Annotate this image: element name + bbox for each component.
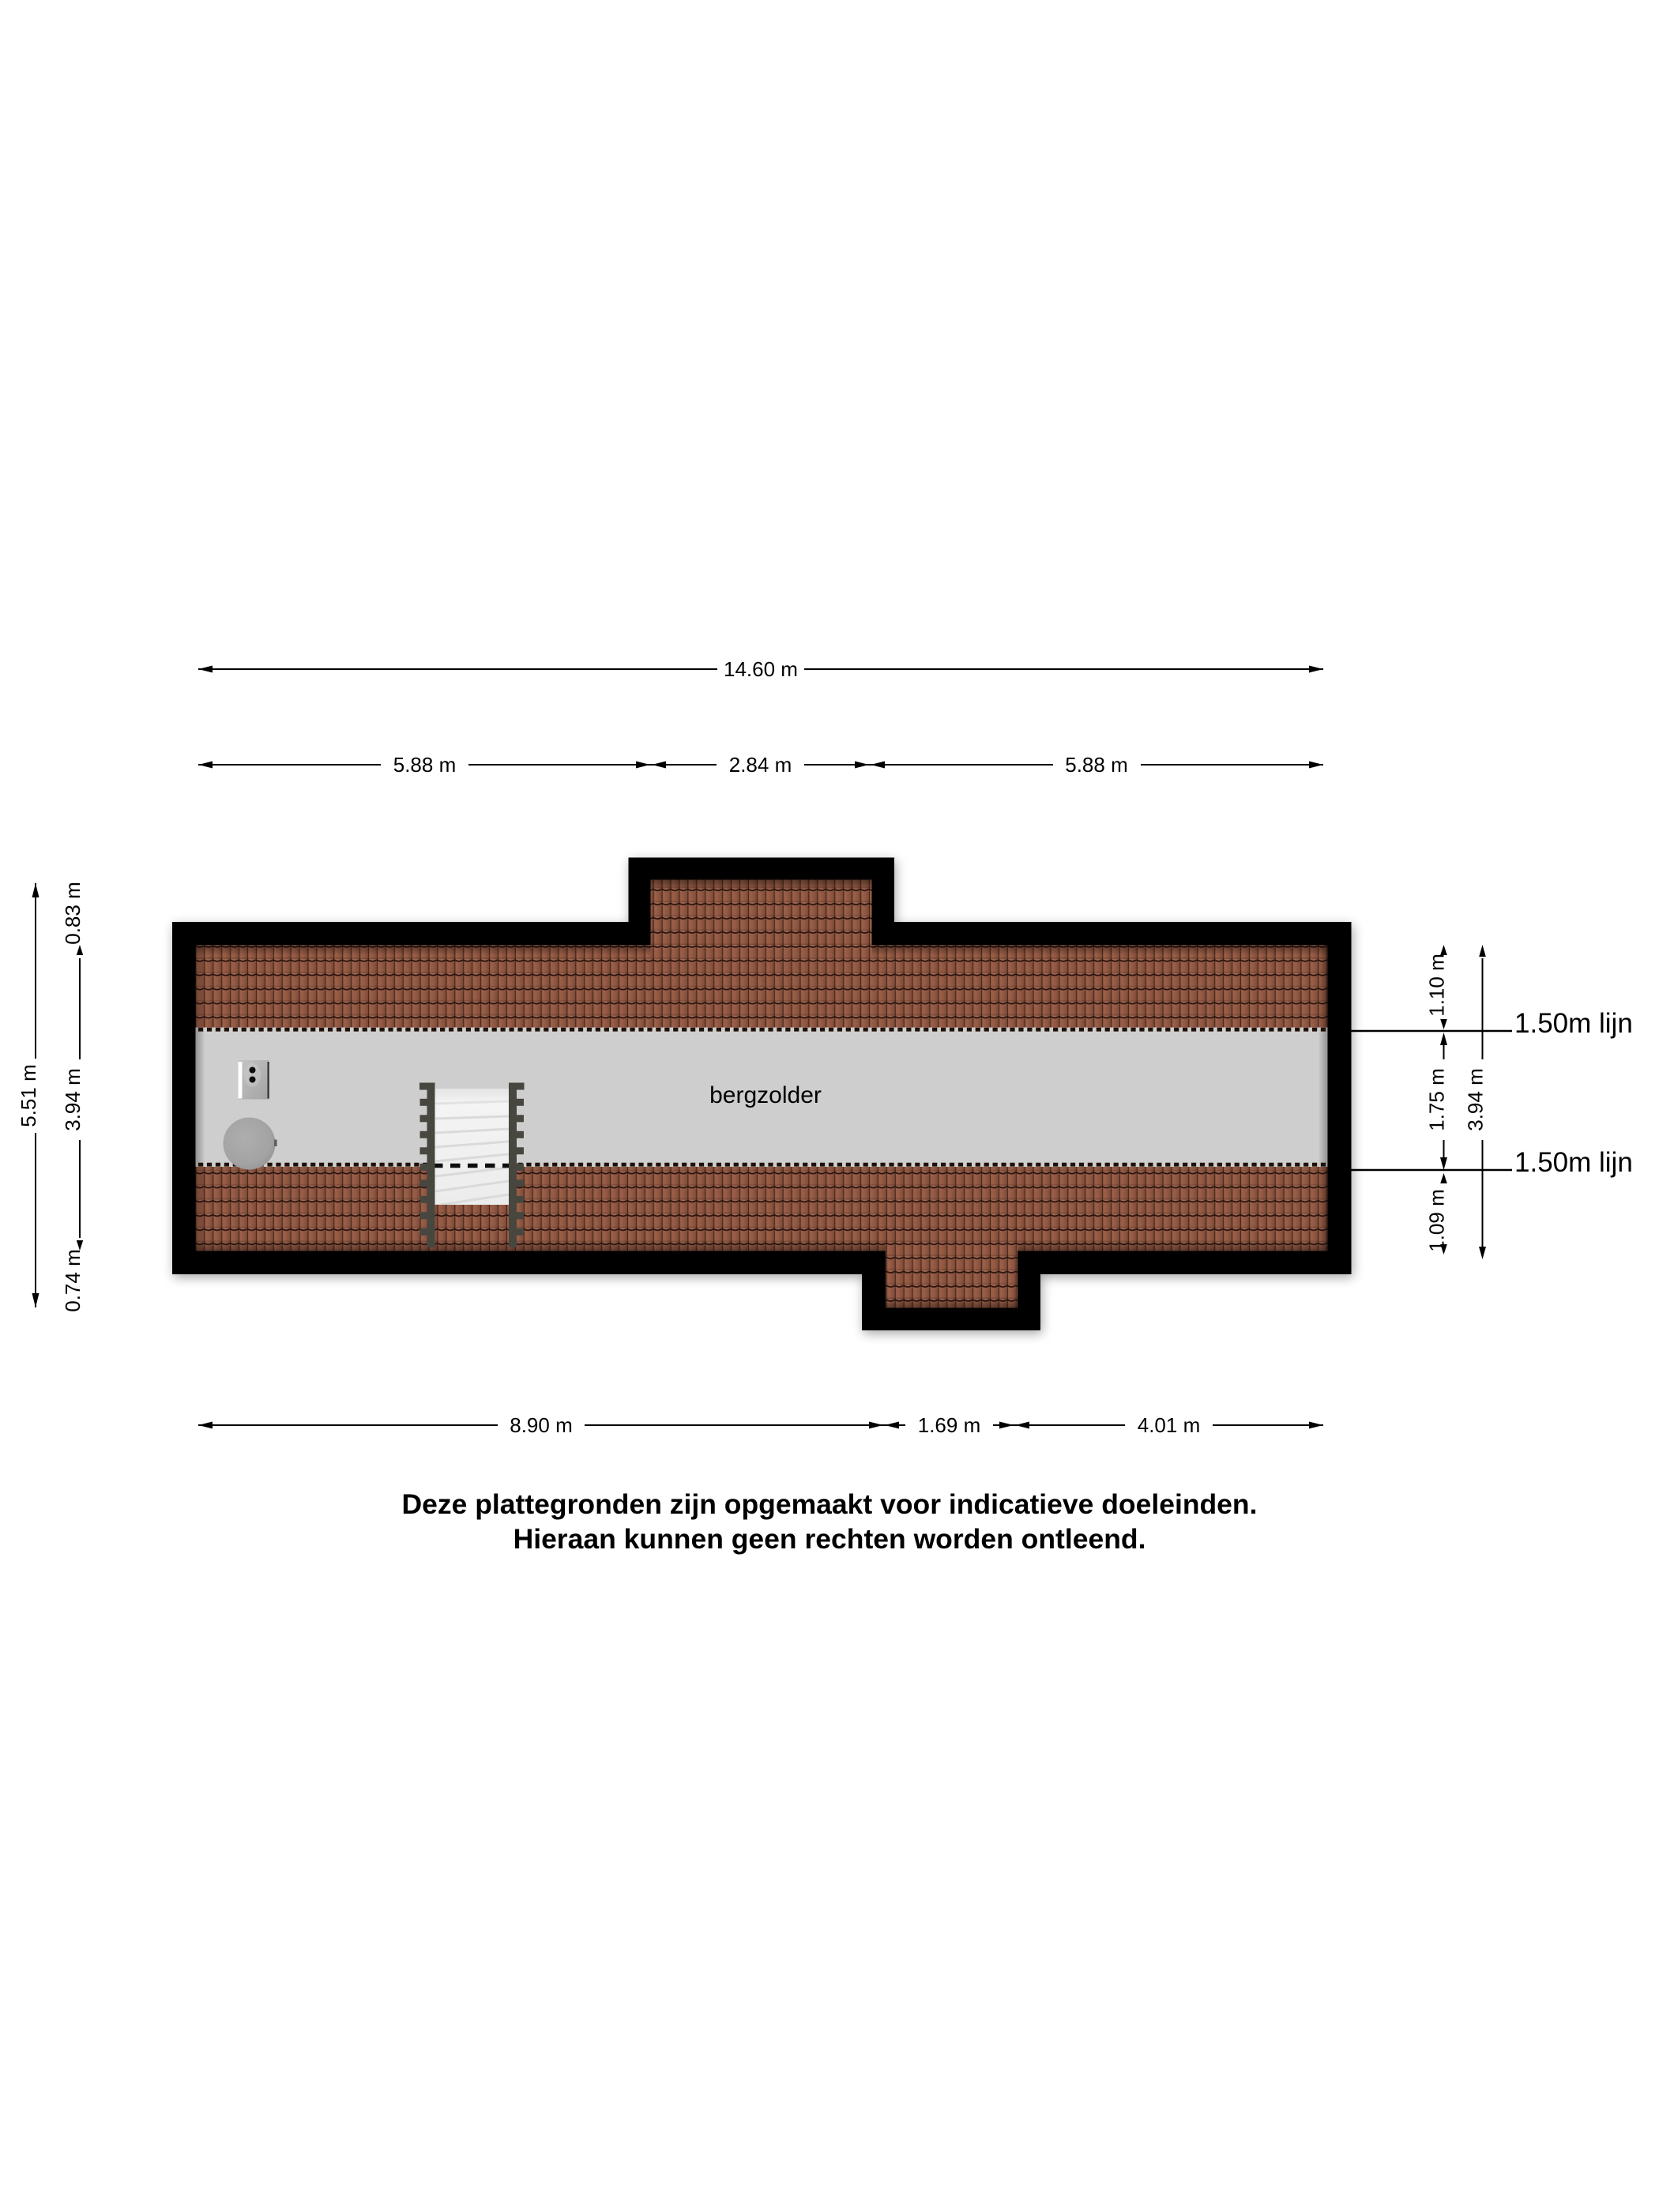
svg-text:14.60 m: 14.60 m [724,657,798,681]
svg-text:1.75 m: 1.75 m [1425,1068,1449,1131]
svg-text:Deze plattegronden zijn opgema: Deze plattegronden zijn opgemaakt voor i… [402,1488,1258,1520]
svg-text:4.01 m: 4.01 m [1138,1413,1201,1437]
svg-text:0.83 m: 0.83 m [61,882,85,945]
svg-text:5.51 m: 5.51 m [17,1064,40,1127]
svg-text:1.50m lijn: 1.50m lijn [1514,1147,1633,1178]
svg-text:1.69 m: 1.69 m [918,1413,981,1437]
svg-text:1.09 m: 1.09 m [1425,1189,1449,1252]
svg-text:0.74 m: 0.74 m [61,1249,85,1312]
svg-text:5.88 m: 5.88 m [1065,753,1128,777]
svg-text:5.88 m: 5.88 m [393,753,457,777]
svg-text:Hieraan kunnen geen rechten wo: Hieraan kunnen geen rechten worden ontle… [513,1523,1146,1555]
svg-text:3.94 m: 3.94 m [1464,1068,1488,1131]
svg-text:bergzolder: bergzolder [709,1082,822,1108]
svg-text:1.50m lijn: 1.50m lijn [1514,1008,1633,1039]
svg-text:3.94 m: 3.94 m [61,1068,85,1131]
svg-text:2.84 m: 2.84 m [729,753,792,777]
svg-text:1.10 m: 1.10 m [1425,954,1449,1017]
svg-text:8.90 m: 8.90 m [510,1413,573,1437]
